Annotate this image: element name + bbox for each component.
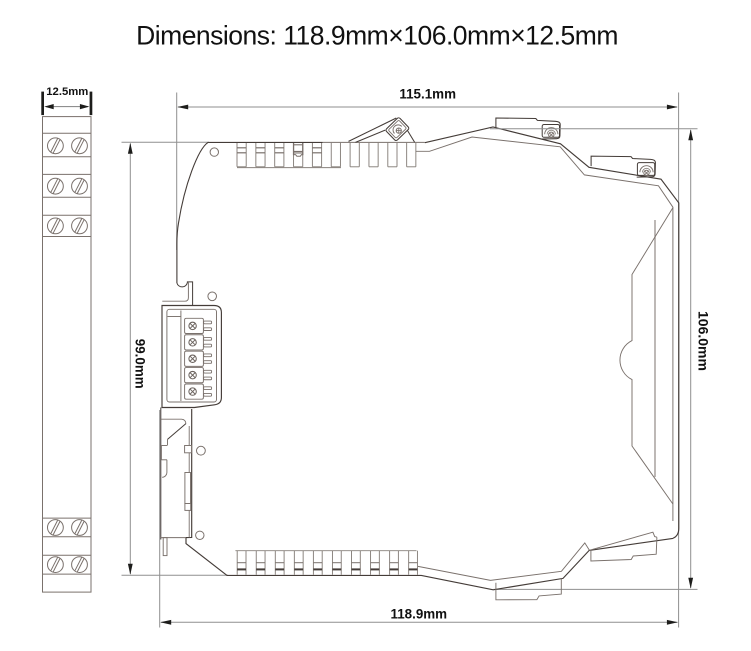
svg-text:106.0mm: 106.0mm (696, 311, 712, 371)
svg-text:Dimensions: 118.9mm×106.0mm×12: Dimensions: 118.9mm×106.0mm×12.5mm (136, 21, 618, 51)
svg-text:115.1mm: 115.1mm (399, 87, 456, 102)
svg-text:12.5mm: 12.5mm (46, 86, 88, 98)
svg-text:118.9mm: 118.9mm (391, 606, 448, 621)
svg-text:99.0mm: 99.0mm (132, 339, 147, 389)
